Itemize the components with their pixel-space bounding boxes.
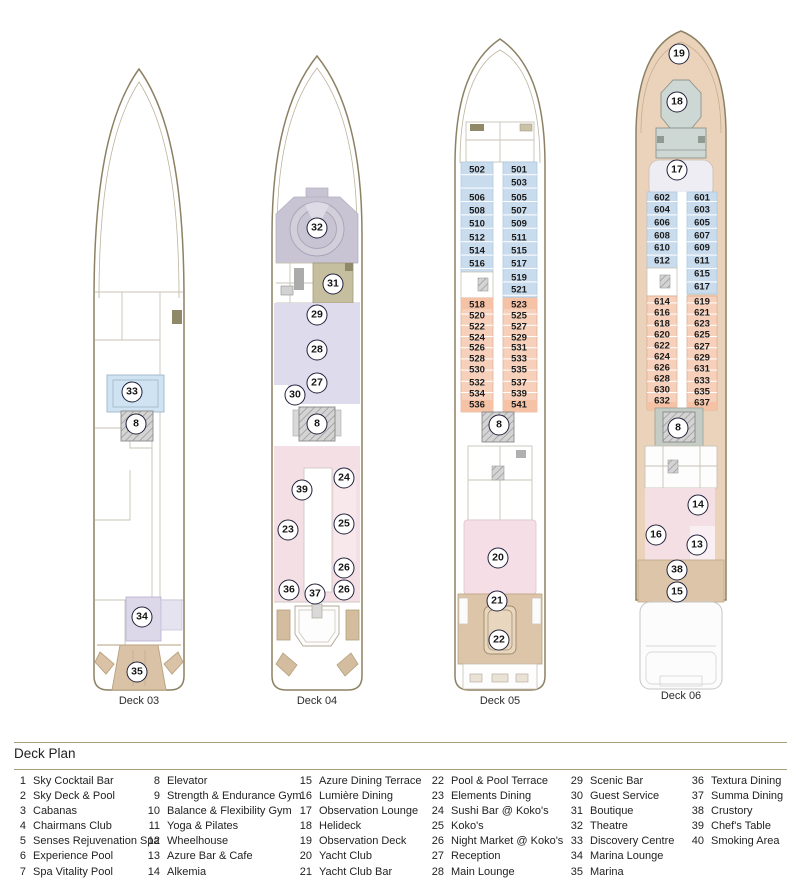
- cabin-521: 521: [511, 285, 527, 295]
- legend-item-8: 8Elevator: [146, 774, 302, 789]
- legend-item-32: 32Theatre: [569, 819, 674, 834]
- legend-column-1: 1Sky Cocktail Bar2Sky Deck & Pool3Cabana…: [12, 774, 160, 880]
- cabin-523: 523: [511, 300, 527, 310]
- marker-deck-05-22: 22: [489, 630, 510, 651]
- marker-deck-04-32: 32: [307, 218, 328, 239]
- legend-item-number: 34: [569, 849, 583, 864]
- cabin-520: 520: [469, 311, 485, 321]
- legend-item-12: 12Wheelhouse: [146, 834, 302, 849]
- cabin-625: 625: [694, 330, 710, 340]
- legend-item-label: Yoga & Pilates: [167, 819, 238, 834]
- legend-item-29: 29Scenic Bar: [569, 774, 674, 789]
- legend-item-21: 21Yacht Club Bar: [298, 865, 422, 880]
- legend-item-number: 23: [430, 789, 444, 804]
- legend-item-number: 27: [430, 849, 444, 864]
- legend-item-10: 10Balance & Flexibility Gym: [146, 804, 302, 819]
- legend-item-4: 4Chairmans Club: [12, 819, 160, 834]
- cabin-508: 508: [469, 206, 485, 216]
- legend-item-30: 30Guest Service: [569, 789, 674, 804]
- legend-item-number: 13: [146, 849, 160, 864]
- legend-item-label: Theatre: [590, 819, 628, 834]
- legend-item-38: 38Crustory: [690, 804, 783, 819]
- legend-item-number: 9: [146, 789, 160, 804]
- cabin-637: 637: [694, 398, 710, 408]
- legend-item-label: Yacht Club: [319, 849, 372, 864]
- marker-deck-05-20: 20: [488, 548, 509, 569]
- cabin-516: 516: [469, 259, 485, 269]
- legend-item-label: Spa Vitality Pool: [33, 865, 113, 880]
- legend-item-18: 18Helideck: [298, 819, 422, 834]
- legend-item-number: 24: [430, 804, 444, 819]
- legend-item-number: 2: [12, 789, 26, 804]
- legend-item-label: Crustory: [711, 804, 753, 819]
- cabin-512: 512: [469, 233, 485, 243]
- cabin-608: 608: [654, 231, 670, 241]
- cabin-537: 537: [511, 378, 527, 388]
- legend-item-label: Strength & Endurance Gym: [167, 789, 302, 804]
- marker-deck-03-34: 34: [132, 607, 153, 628]
- cabin-626: 626: [654, 363, 670, 373]
- cabin-541: 541: [511, 400, 527, 410]
- cabin-506: 506: [469, 193, 485, 203]
- cabin-607: 607: [694, 231, 710, 241]
- cabin-533: 533: [511, 354, 527, 364]
- legend-item-28: 28Main Lounge: [430, 865, 563, 880]
- legend-item-36: 36Textura Dining: [690, 774, 783, 789]
- legend-item-number: 38: [690, 804, 704, 819]
- legend-item-number: 20: [298, 849, 312, 864]
- legend-item-24: 24Sushi Bar @ Koko's: [430, 804, 563, 819]
- legend-item-7: 7Spa Vitality Pool: [12, 865, 160, 880]
- marker-deck-06-16: 16: [646, 525, 667, 546]
- cabin-519: 519: [511, 273, 527, 283]
- cabin-530: 530: [469, 365, 485, 375]
- legend-item-label: Sky Deck & Pool: [33, 789, 115, 804]
- legend-item-number: 18: [298, 819, 312, 834]
- cabin-630: 630: [654, 385, 670, 395]
- legend-item-number: 29: [569, 774, 583, 789]
- cabin-532: 532: [469, 378, 485, 388]
- marker-deck-03-35: 35: [127, 662, 148, 683]
- cabin-615: 615: [694, 269, 710, 279]
- legend-item-34: 34Marina Lounge: [569, 849, 674, 864]
- cabin-604: 604: [654, 205, 670, 215]
- legend-item-label: Senses Rejuvenation Spa: [33, 834, 160, 849]
- legend-item-label: Yacht Club Bar: [319, 865, 392, 880]
- legend-item-number: 4: [12, 819, 26, 834]
- deck-label-deck-05: Deck 05: [480, 695, 520, 707]
- legend-item-number: 10: [146, 804, 160, 819]
- marker-deck-06-13: 13: [687, 535, 708, 556]
- cabin-603: 603: [694, 205, 710, 215]
- legend-divider-top: [14, 742, 787, 743]
- cabin-507: 507: [511, 206, 527, 216]
- marker-deck-06-14: 14: [688, 495, 709, 516]
- legend-item-label: Night Market @ Koko's: [451, 834, 563, 849]
- legend-column-4: 22Pool & Pool Terrace23Elements Dining24…: [430, 774, 563, 880]
- cabin-632: 632: [654, 396, 670, 406]
- cabin-602: 602: [654, 193, 670, 203]
- legend-item-label: Chairmans Club: [33, 819, 112, 834]
- marker-deck-06-8: 8: [668, 418, 689, 439]
- cabin-525: 525: [511, 311, 527, 321]
- cabin-616: 616: [654, 308, 670, 318]
- legend-item-label: Experience Pool: [33, 849, 113, 864]
- legend-item-5: 5Senses Rejuvenation Spa: [12, 834, 160, 849]
- cabin-509: 509: [511, 219, 527, 229]
- legend-item-20: 20Yacht Club: [298, 849, 422, 864]
- legend-item-number: 19: [298, 834, 312, 849]
- cabin-527: 527: [511, 322, 527, 332]
- cabin-526: 526: [469, 343, 485, 353]
- legend-item-16: 16Lumière Dining: [298, 789, 422, 804]
- legend-item-label: Reception: [451, 849, 501, 864]
- marker-deck-04-25: 25: [334, 514, 355, 535]
- legend-item-label: Sky Cocktail Bar: [33, 774, 114, 789]
- legend-item-label: Lumière Dining: [319, 789, 393, 804]
- legend-item-label: Elements Dining: [451, 789, 531, 804]
- legend-item-label: Pool & Pool Terrace: [451, 774, 548, 789]
- cabin-610: 610: [654, 243, 670, 253]
- legend-item-label: Boutique: [590, 804, 633, 819]
- legend-item-35: 35Marina: [569, 865, 674, 880]
- marker-deck-06-18: 18: [667, 92, 688, 113]
- cabin-501: 501: [511, 165, 527, 175]
- legend-item-27: 27Reception: [430, 849, 563, 864]
- cabin-635: 635: [694, 387, 710, 397]
- marker-deck-06-15: 15: [667, 582, 688, 603]
- legend-item-number: 22: [430, 774, 444, 789]
- legend-item-number: 12: [146, 834, 160, 849]
- legend-item-number: 15: [298, 774, 312, 789]
- cabin-605: 605: [694, 218, 710, 228]
- legend-item-label: Scenic Bar: [590, 774, 643, 789]
- legend-item-23: 23Elements Dining: [430, 789, 563, 804]
- legend-item-label: Marina Lounge: [590, 849, 663, 864]
- marker-deck-04-23: 23: [278, 520, 299, 541]
- cabin-522: 522: [469, 322, 485, 332]
- legend-item-19: 19Observation Deck: [298, 834, 422, 849]
- legend-title: Deck Plan: [14, 746, 76, 761]
- legend-item-13: 13Azure Bar & Cafe: [146, 849, 302, 864]
- legend-column-3: 15Azure Dining Terrace16Lumière Dining17…: [298, 774, 422, 880]
- legend-item-number: 28: [430, 865, 444, 880]
- legend-item-number: 40: [690, 834, 704, 849]
- legend-item-label: Textura Dining: [711, 774, 781, 789]
- cabin-619: 619: [694, 297, 710, 307]
- cabin-624: 624: [654, 352, 670, 362]
- legend-item-label: Balance & Flexibility Gym: [167, 804, 292, 819]
- cabin-620: 620: [654, 330, 670, 340]
- legend-column-6: 36Textura Dining37Summa Dining38Crustory…: [690, 774, 783, 849]
- cabin-514: 514: [469, 246, 485, 256]
- cabin-535: 535: [511, 365, 527, 375]
- marker-deck-04-31: 31: [323, 274, 344, 295]
- legend-item-40: 40Smoking Area: [690, 834, 783, 849]
- deck-label-deck-03: Deck 03: [119, 695, 159, 707]
- deck-label-deck-06: Deck 06: [661, 690, 701, 702]
- legend-item-number: 21: [298, 865, 312, 880]
- legend-item-number: 5: [12, 834, 26, 849]
- legend-item-label: Observation Lounge: [319, 804, 418, 819]
- legend-item-number: 8: [146, 774, 160, 789]
- marker-deck-03-8: 8: [126, 414, 147, 435]
- legend-item-number: 33: [569, 834, 583, 849]
- legend-item-number: 30: [569, 789, 583, 804]
- cabin-633: 633: [694, 376, 710, 386]
- legend-item-39: 39Chef's Table: [690, 819, 783, 834]
- legend-item-label: Alkemia: [167, 865, 206, 880]
- legend-item-number: 36: [690, 774, 704, 789]
- legend-item-label: Helideck: [319, 819, 361, 834]
- cabin-534: 534: [469, 389, 485, 399]
- cabin-531: 531: [511, 343, 527, 353]
- legend-item-11: 11Yoga & Pilates: [146, 819, 302, 834]
- legend-item-22: 22Pool & Pool Terrace: [430, 774, 563, 789]
- legend-item-label: Azure Dining Terrace: [319, 774, 422, 789]
- cabin-627: 627: [694, 342, 710, 352]
- legend-item-label: Smoking Area: [711, 834, 779, 849]
- cabin-505: 505: [511, 193, 527, 203]
- legend-item-label: Summa Dining: [711, 789, 783, 804]
- cabin-628: 628: [654, 374, 670, 384]
- marker-deck-04-24: 24: [334, 468, 355, 489]
- cabin-503: 503: [511, 178, 527, 188]
- marker-deck-05-8: 8: [489, 415, 510, 436]
- marker-deck-06-38: 38: [667, 560, 688, 581]
- legend-item-label: Guest Service: [590, 789, 659, 804]
- marker-deck-04-30: 30: [285, 385, 306, 406]
- marker-deck-04-26: 26: [334, 558, 355, 579]
- legend-item-label: Wheelhouse: [167, 834, 228, 849]
- cabin-629: 629: [694, 353, 710, 363]
- legend-column-5: 29Scenic Bar30Guest Service31Boutique32T…: [569, 774, 674, 880]
- legend-item-label: Chef's Table: [711, 819, 771, 834]
- cabin-609: 609: [694, 243, 710, 253]
- legend-item-label: Main Lounge: [451, 865, 515, 880]
- legend-item-1: 1Sky Cocktail Bar: [12, 774, 160, 789]
- legend-item-number: 26: [430, 834, 444, 849]
- legend-item-number: 37: [690, 789, 704, 804]
- legend-item-label: Elevator: [167, 774, 207, 789]
- legend-item-number: 11: [146, 819, 160, 834]
- legend-item-label: Azure Bar & Cafe: [167, 849, 253, 864]
- legend-divider-mid: [14, 769, 787, 770]
- legend-item-26: 26Night Market @ Koko's: [430, 834, 563, 849]
- marker-deck-04-8: 8: [307, 414, 328, 435]
- legend-item-label: Observation Deck: [319, 834, 406, 849]
- legend-item-number: 14: [146, 865, 160, 880]
- cabin-606: 606: [654, 218, 670, 228]
- cabin-622: 622: [654, 341, 670, 351]
- cabin-601: 601: [694, 193, 710, 203]
- marker-deck-06-19: 19: [669, 44, 690, 65]
- legend-item-number: 16: [298, 789, 312, 804]
- cabin-612: 612: [654, 256, 670, 266]
- marker-deck-04-36: 36: [279, 580, 300, 601]
- cabin-510: 510: [469, 219, 485, 229]
- marker-deck-04-39: 39: [292, 480, 313, 501]
- legend-item-label: Cabanas: [33, 804, 77, 819]
- marker-deck-04-37: 37: [305, 584, 326, 605]
- legend-item-14: 14Alkemia: [146, 865, 302, 880]
- legend-item-25: 25Koko's: [430, 819, 563, 834]
- legend-item-33: 33Discovery Centre: [569, 834, 674, 849]
- cabin-518: 518: [469, 300, 485, 310]
- deck-plan-page: Deck 033383435Deck 043231292827308243925…: [0, 0, 801, 885]
- legend-item-15: 15Azure Dining Terrace: [298, 774, 422, 789]
- legend-item-17: 17Observation Lounge: [298, 804, 422, 819]
- marker-deck-06-17: 17: [667, 160, 688, 181]
- legend-item-number: 31: [569, 804, 583, 819]
- cabin-511: 511: [511, 233, 526, 243]
- legend-item-label: Discovery Centre: [590, 834, 674, 849]
- marker-deck-03-33: 33: [122, 382, 143, 403]
- legend-item-31: 31Boutique: [569, 804, 674, 819]
- legend-item-label: Marina: [590, 865, 624, 880]
- legend-item-37: 37Summa Dining: [690, 789, 783, 804]
- legend-item-number: 7: [12, 865, 26, 880]
- marker-deck-04-29: 29: [307, 305, 328, 326]
- legend-item-label: Koko's: [451, 819, 484, 834]
- legend-column-2: 8Elevator9Strength & Endurance Gym10Bala…: [146, 774, 302, 880]
- cabin-539: 539: [511, 389, 527, 399]
- marker-deck-04-26: 26: [334, 580, 355, 601]
- markers-overlay: Deck 033383435Deck 043231292827308243925…: [0, 0, 801, 740]
- marker-deck-04-27: 27: [307, 373, 328, 394]
- cabin-611: 611: [694, 256, 709, 266]
- cabin-517: 517: [511, 259, 527, 269]
- legend-item-number: 1: [12, 774, 26, 789]
- legend-item-2: 2Sky Deck & Pool: [12, 789, 160, 804]
- cabin-621: 621: [694, 308, 710, 318]
- cabin-623: 623: [694, 319, 710, 329]
- legend-item-6: 6Experience Pool: [12, 849, 160, 864]
- cabin-614: 614: [654, 297, 670, 307]
- cabin-617: 617: [694, 282, 710, 292]
- deck-label-deck-04: Deck 04: [297, 695, 337, 707]
- legend-item-9: 9Strength & Endurance Gym: [146, 789, 302, 804]
- cabin-631: 631: [694, 364, 710, 374]
- legend-item-number: 35: [569, 865, 583, 880]
- marker-deck-05-21: 21: [487, 591, 508, 612]
- legend-item-3: 3Cabanas: [12, 804, 160, 819]
- legend-item-number: 6: [12, 849, 26, 864]
- cabin-536: 536: [469, 400, 485, 410]
- cabin-515: 515: [511, 246, 527, 256]
- legend-item-number: 32: [569, 819, 583, 834]
- legend: 1Sky Cocktail Bar2Sky Deck & Pool3Cabana…: [0, 774, 801, 884]
- marker-deck-04-28: 28: [307, 340, 328, 361]
- cabin-528: 528: [469, 354, 485, 364]
- legend-item-label: Sushi Bar @ Koko's: [451, 804, 549, 819]
- cabin-502: 502: [469, 165, 485, 175]
- cabin-618: 618: [654, 319, 670, 329]
- legend-item-number: 25: [430, 819, 444, 834]
- legend-item-number: 3: [12, 804, 26, 819]
- legend-item-number: 39: [690, 819, 704, 834]
- legend-item-number: 17: [298, 804, 312, 819]
